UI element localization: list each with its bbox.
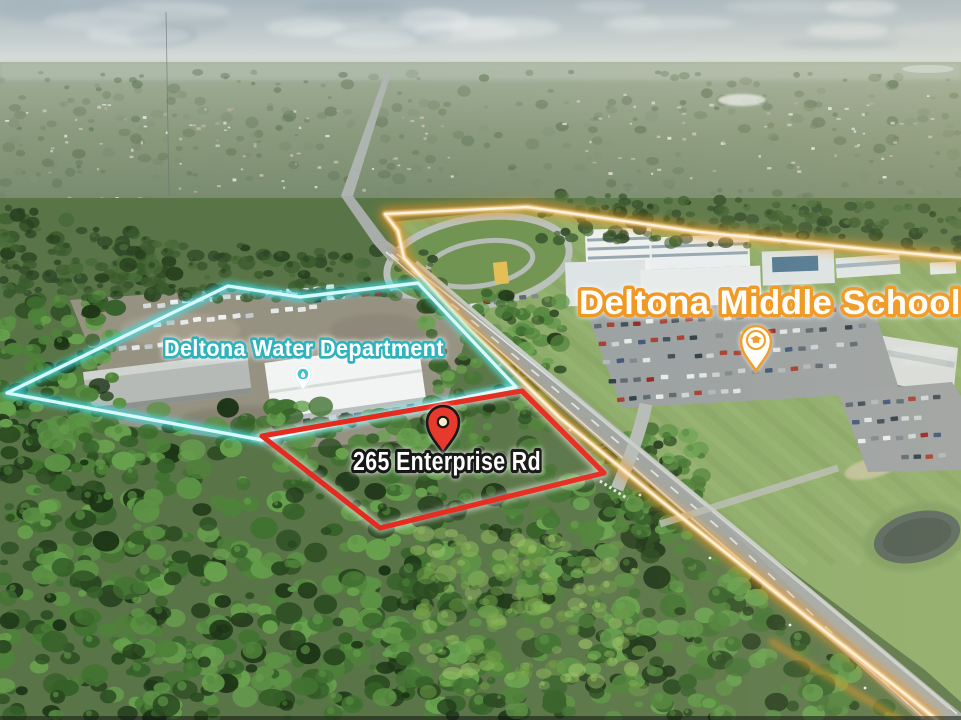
portable-building — [930, 261, 957, 274]
sky — [0, 0, 961, 70]
water-department-label: Deltona Water Department — [164, 335, 444, 361]
yellow-outbuilding — [493, 261, 509, 284]
middle-school-label: Deltona Middle School — [579, 284, 961, 322]
parcel-address-label: 265 Enterprise Rd — [353, 448, 541, 476]
aerial-photo: Deltona Water Department Deltona Middle … — [0, 0, 961, 720]
bottom-shadow-edge — [0, 716, 961, 720]
